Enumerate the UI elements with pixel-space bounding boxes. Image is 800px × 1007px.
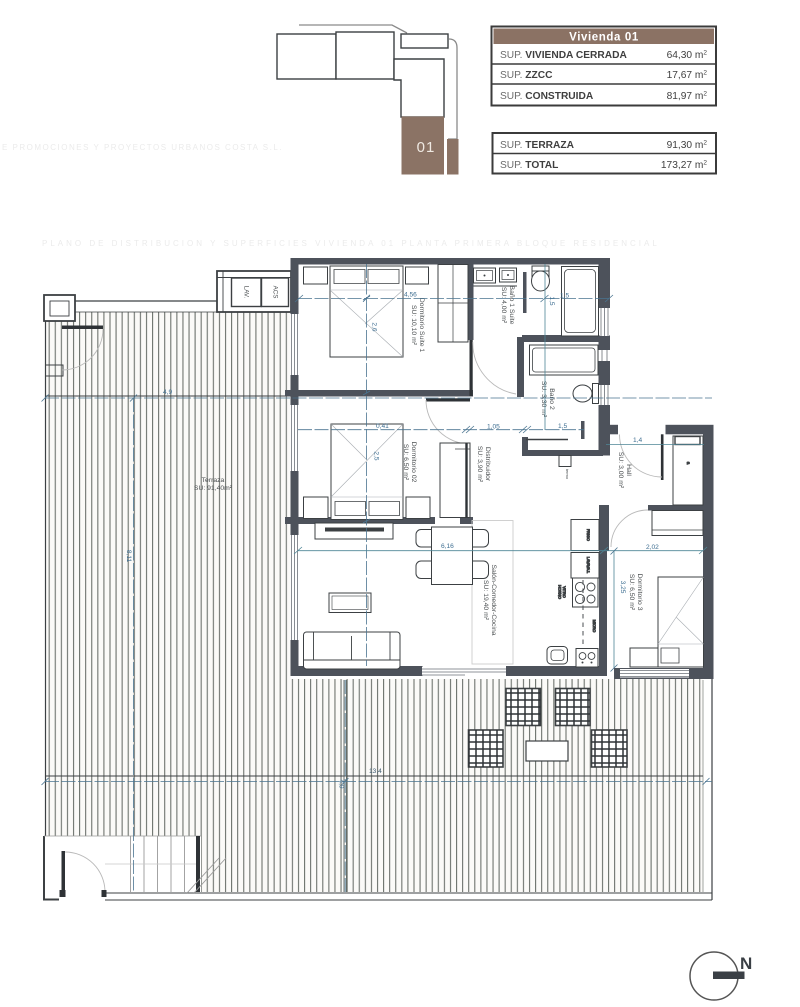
svg-text:SUP. TERRAZA: SUP. TERRAZA bbox=[500, 140, 575, 151]
svg-text:3,25: 3,25 bbox=[619, 581, 626, 594]
svg-text:4,9: 4,9 bbox=[338, 779, 345, 788]
svg-text:2,5: 2,5 bbox=[373, 451, 380, 460]
svg-text:SUP. VIVIENDA CERRADA: SUP. VIVIENDA CERRADA bbox=[500, 50, 627, 61]
svg-text:81,97 m2: 81,97 m2 bbox=[667, 91, 708, 103]
svg-text:13,4: 13,4 bbox=[369, 768, 382, 775]
svg-text:Dormitorio 02SU: 6,50 m²: Dormitorio 02SU: 6,50 m² bbox=[402, 442, 417, 483]
svg-text:LAV.: LAV. bbox=[242, 286, 249, 299]
svg-text:ACS: ACS bbox=[271, 286, 278, 299]
svg-text:FRIGO: FRIGO bbox=[586, 529, 590, 541]
svg-text:01: 01 bbox=[417, 139, 436, 156]
svg-text:4,56: 4,56 bbox=[404, 292, 417, 299]
svg-text:SUP. TOTAL: SUP. TOTAL bbox=[500, 160, 558, 171]
svg-text:91,30 m2: 91,30 m2 bbox=[667, 140, 708, 152]
svg-text:PLANO DE DISTRIBUCION Y SUPERF: PLANO DE DISTRIBUCION Y SUPERFICIES VIVI… bbox=[42, 239, 660, 248]
svg-text:2,6: 2,6 bbox=[371, 322, 378, 331]
svg-text:1,5: 1,5 bbox=[560, 293, 569, 300]
svg-text:SUP. CONSTRUIDA: SUP. CONSTRUIDA bbox=[500, 91, 594, 102]
svg-text:VITROHORNO: VITROHORNO bbox=[558, 585, 567, 599]
svg-text:1,5: 1,5 bbox=[558, 423, 567, 430]
svg-text:Vivienda 01: Vivienda 01 bbox=[569, 32, 639, 44]
svg-text:Baño 1 SuiteSU: 4,00 m²: Baño 1 SuiteSU: 4,00 m² bbox=[500, 286, 515, 325]
svg-text:Dormitorio 3SU: 6,50 m²: Dormitorio 3SU: 6,50 m² bbox=[628, 573, 643, 610]
svg-text:E PROMOCIONES Y PROYECTOS U: E PROMOCIONES Y PROYECTOS URBANOS COSTA … bbox=[2, 143, 283, 152]
svg-text:0,41: 0,41 bbox=[376, 423, 389, 430]
svg-text:termo: termo bbox=[565, 469, 570, 480]
svg-text:2,02: 2,02 bbox=[646, 544, 659, 551]
svg-text:17,67 m2: 17,67 m2 bbox=[667, 70, 708, 82]
svg-text:LAVAVAJ.: LAVAVAJ. bbox=[586, 557, 590, 574]
svg-text:1,5: 1,5 bbox=[548, 296, 555, 305]
svg-text:Dormitorio Suite 1SU: 10,10 m²: Dormitorio Suite 1SU: 10,10 m² bbox=[410, 298, 425, 353]
svg-text:SUP. ZZCC: SUP. ZZCC bbox=[500, 70, 553, 81]
svg-text:N: N bbox=[740, 954, 752, 973]
svg-text:DistribuidorSU: 3,90 m²: DistribuidorSU: 3,90 m² bbox=[476, 446, 491, 483]
svg-text:173,27 m2: 173,27 m2 bbox=[661, 160, 707, 172]
svg-text:8,11: 8,11 bbox=[125, 550, 132, 563]
svg-text:64,30 m2: 64,30 m2 bbox=[667, 50, 708, 62]
svg-text:MICRO: MICRO bbox=[592, 620, 596, 633]
svg-text:6,16: 6,16 bbox=[441, 543, 454, 550]
svg-text:1,4: 1,4 bbox=[633, 437, 642, 444]
svg-text:4,9: 4,9 bbox=[163, 389, 172, 396]
svg-text:1,05: 1,05 bbox=[487, 424, 500, 431]
